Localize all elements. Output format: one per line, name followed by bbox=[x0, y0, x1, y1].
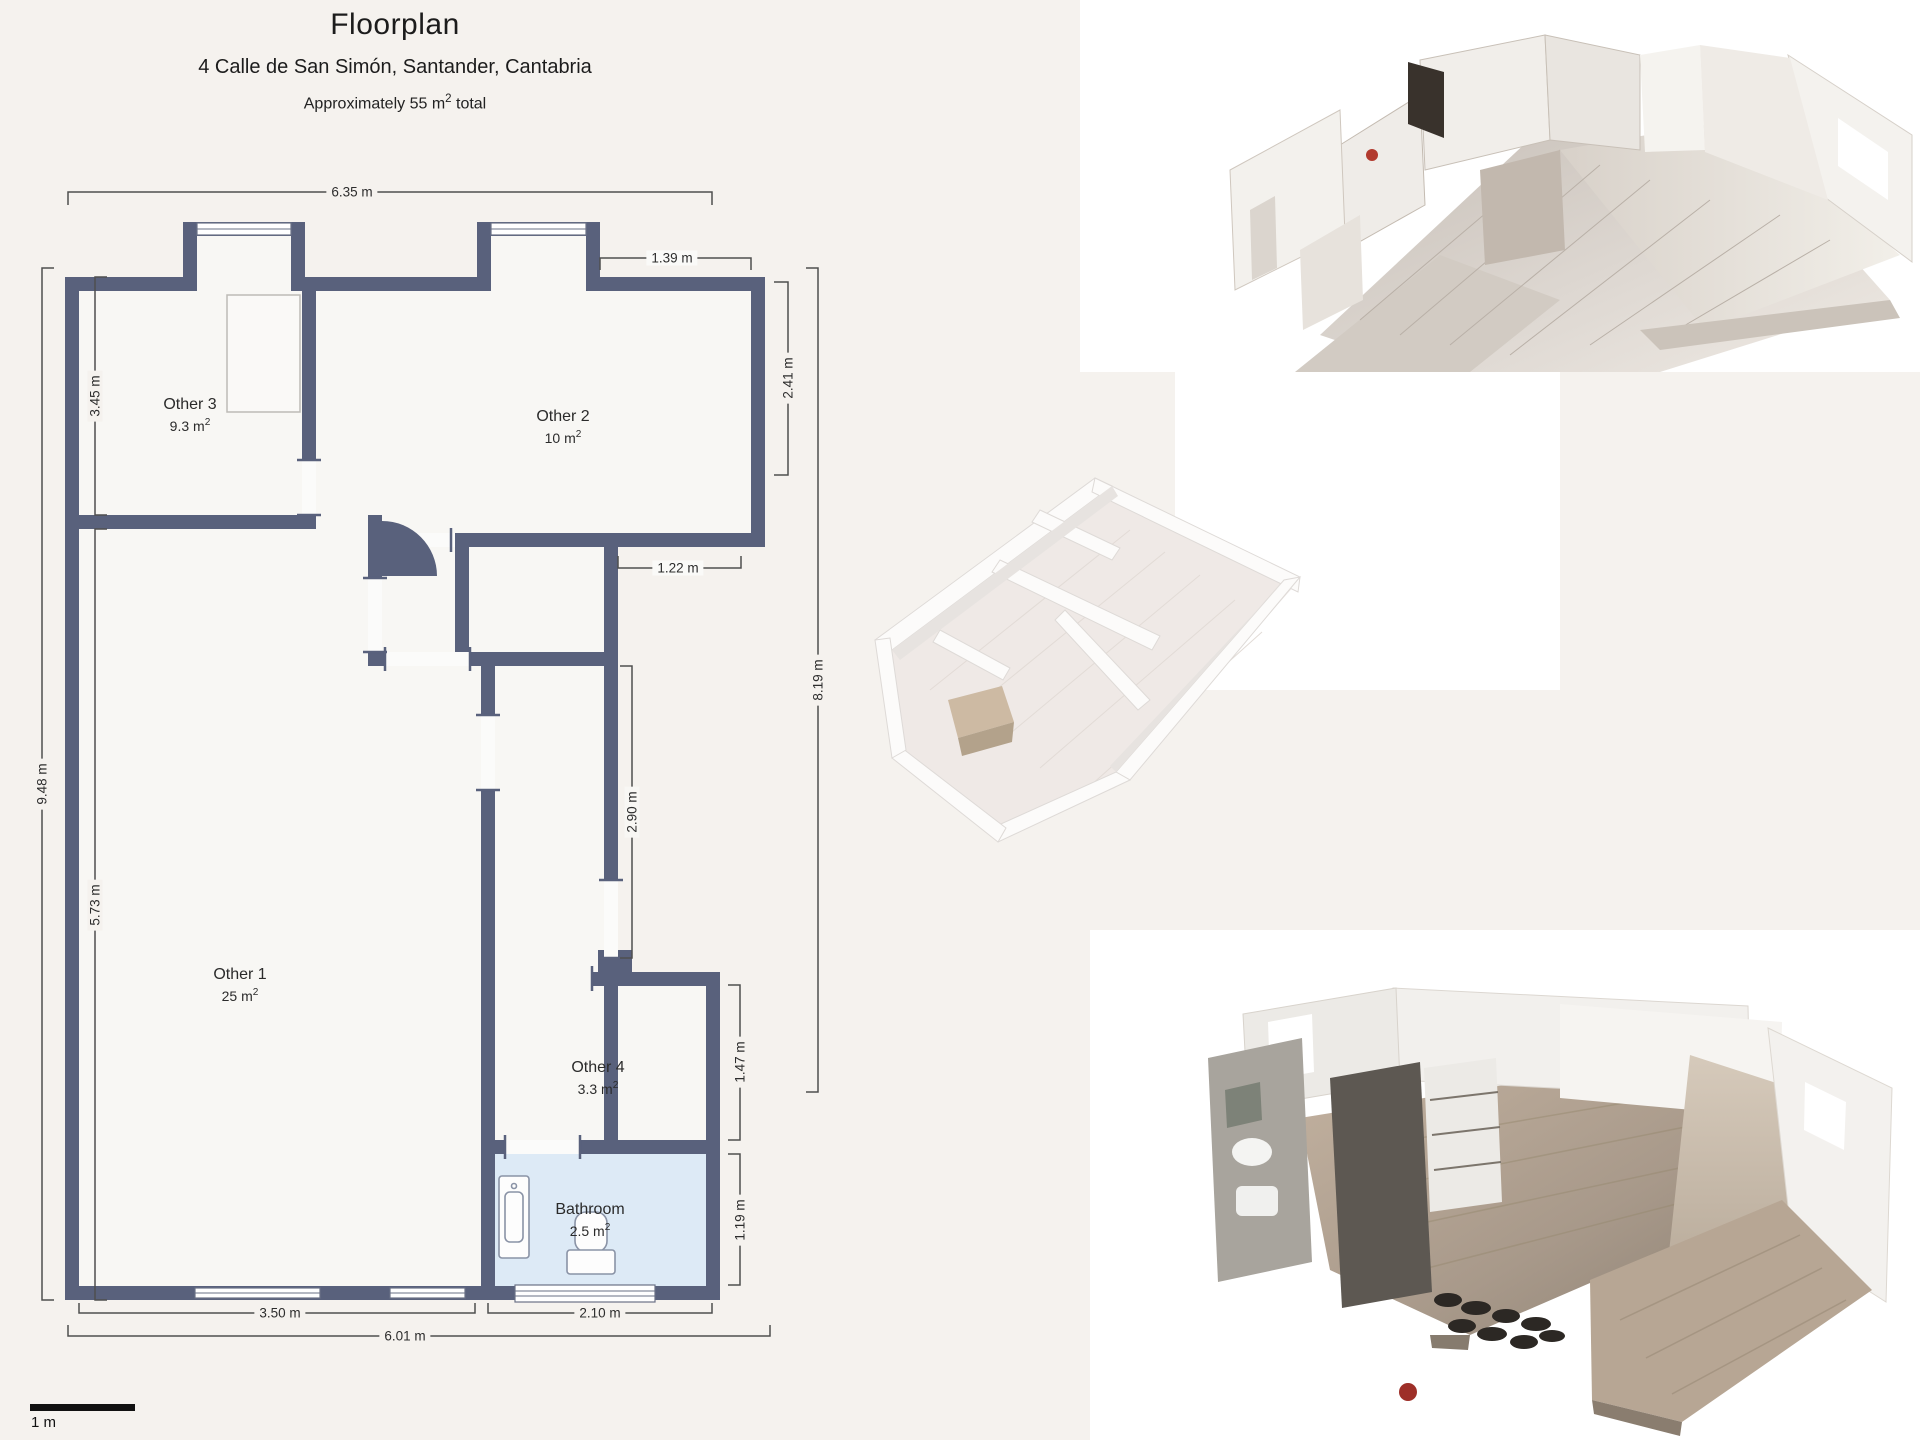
sink-basin bbox=[505, 1192, 523, 1242]
page-title: Floorplan bbox=[0, 8, 790, 42]
dimension-label-8-19: 8.19 m bbox=[811, 654, 826, 705]
toilet-bowl bbox=[575, 1212, 607, 1252]
scale-bar bbox=[30, 1404, 135, 1411]
dimension-label-2-10: 2.10 m bbox=[574, 1306, 625, 1321]
sink-faucet bbox=[512, 1184, 517, 1189]
dimension-label-2-41: 2.41 m bbox=[781, 352, 796, 403]
dimension-label-6-01: 6.01 m bbox=[379, 1329, 430, 1344]
dimension-label-9-48: 9.48 m bbox=[35, 758, 50, 809]
dimension-label-6-35: 6.35 m bbox=[326, 185, 377, 200]
dimension-label-5-73: 5.73 m bbox=[88, 879, 103, 930]
red-object-dot-2 bbox=[1399, 1383, 1417, 1401]
red-object-dot bbox=[1366, 149, 1378, 161]
dimension-label-1-19: 1.19 m bbox=[733, 1194, 748, 1245]
dimension-label-3-50: 3.50 m bbox=[254, 1306, 305, 1321]
floorplan-header: Floorplan 4 Calle de San Simón, Santande… bbox=[0, 0, 790, 113]
floorplan-scene bbox=[0, 0, 1920, 1440]
dimension-label-1-22: 1.22 m bbox=[652, 561, 703, 576]
room-floors bbox=[79, 236, 751, 1286]
scale-bar-label: 1 m bbox=[31, 1414, 56, 1431]
dimension-label-1-47: 1.47 m bbox=[733, 1036, 748, 1087]
closet-outline bbox=[227, 295, 300, 412]
toilet-tank bbox=[567, 1250, 615, 1274]
dimension-label-2-90: 2.90 m bbox=[625, 786, 640, 837]
dimension-label-1-39: 1.39 m bbox=[646, 251, 697, 266]
floorplan-2d bbox=[30, 192, 818, 1411]
dimension-label-3-45: 3.45 m bbox=[88, 370, 103, 421]
page-address: 4 Calle de San Simón, Santander, Cantabr… bbox=[0, 56, 790, 79]
page-area-total: Approximately 55 m2 total bbox=[0, 93, 790, 113]
